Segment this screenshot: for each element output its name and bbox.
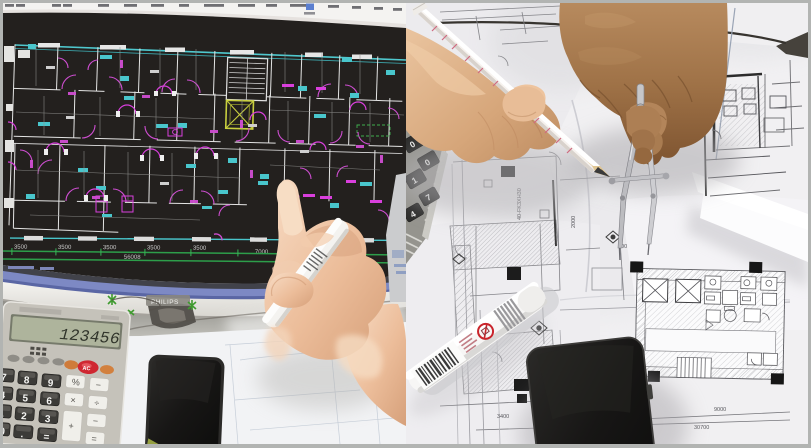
svg-text:2000: 2000 (571, 216, 577, 228)
svg-text:AC: AC (82, 366, 90, 373)
svg-text:×: × (70, 395, 76, 405)
svg-text:3500: 3500 (193, 246, 207, 252)
svg-text:−: − (93, 416, 99, 426)
svg-text:=: = (91, 434, 97, 444)
svg-text:9000: 9000 (714, 407, 726, 413)
svg-text:3500: 3500 (103, 245, 117, 251)
svg-text:3500: 3500 (14, 245, 28, 251)
svg-text:+: + (68, 421, 74, 431)
svg-text:7000: 7000 (255, 250, 269, 256)
svg-text:%: % (71, 377, 80, 388)
svg-text:30700: 30700 (694, 425, 709, 431)
svg-text:=: = (43, 432, 50, 443)
svg-text:3400: 3400 (497, 414, 509, 420)
svg-text:÷: ÷ (94, 398, 100, 408)
svg-text:PHILIPS: PHILIPS (151, 299, 179, 306)
svg-text:−: − (95, 380, 101, 390)
svg-text:3500: 3500 (147, 245, 161, 251)
svg-text:3500: 3500 (58, 245, 72, 251)
